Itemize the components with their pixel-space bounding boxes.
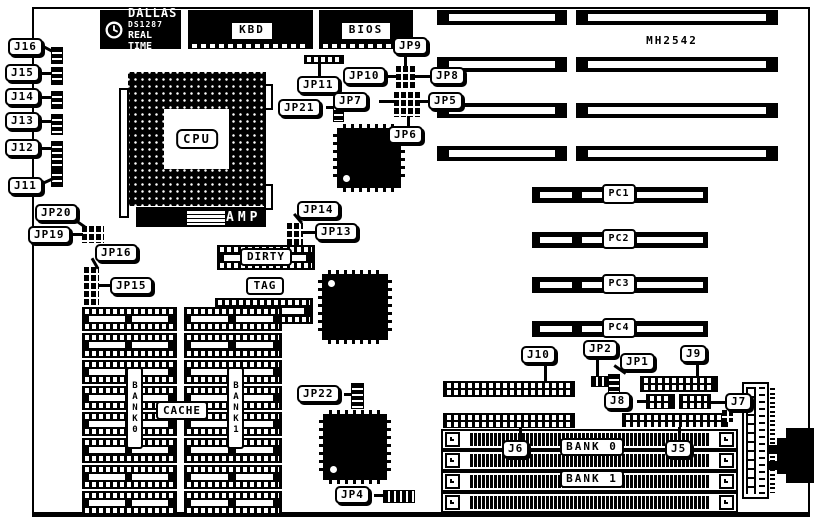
pin-row (187, 335, 279, 340)
callout-jp15: JP15 (110, 277, 153, 295)
cache-dip-socket (82, 307, 177, 331)
callout-jp7: JP7 (333, 92, 368, 110)
callout-j6: J6 (502, 440, 529, 458)
jumper-jp22 (351, 383, 364, 409)
pin-row (187, 309, 279, 314)
pc-slot-1: PC1 (532, 187, 708, 203)
callout-pointer (42, 147, 51, 150)
pin-header-j10 (443, 381, 575, 397)
socket-bar (191, 500, 228, 506)
socket-bar (89, 316, 125, 322)
power-connector-pins (770, 388, 775, 493)
callout-jp11: JP11 (297, 76, 340, 94)
socket-bar (89, 500, 125, 506)
pin-row (218, 300, 310, 305)
callout-j13: J13 (5, 112, 40, 130)
pin-row (85, 482, 174, 487)
jumper-jp4 (383, 490, 415, 503)
callout-jp6: JP6 (388, 126, 423, 144)
callout-j10: J10 (521, 346, 556, 364)
pin-row (187, 362, 279, 367)
jumper-j13 (51, 114, 63, 135)
socket-bar (132, 342, 168, 348)
pin-row (187, 324, 279, 329)
pin-row (85, 351, 174, 356)
isa-slot-1-long (576, 10, 778, 25)
cache-dip-socket (82, 333, 177, 357)
callout-j8: J8 (604, 392, 631, 410)
callout-pointer (696, 362, 699, 377)
socket-bar (89, 369, 125, 375)
cache-dip-socket (184, 465, 282, 489)
socket-bar (191, 447, 228, 453)
amp-connector (186, 210, 226, 226)
pc3-label: PC3 (602, 274, 636, 294)
callout-jp20: JP20 (35, 204, 78, 222)
callout-pointer (637, 400, 647, 403)
clock-icon (103, 19, 125, 41)
pin-row (85, 467, 174, 472)
cpu-side-connector-left (119, 88, 129, 218)
pin-row (187, 482, 279, 487)
pin-header-jp11 (304, 55, 344, 64)
callout-jp19: JP19 (28, 226, 71, 244)
kbd-chip: KBD (188, 10, 313, 49)
jumper-block-jp15-jp16 (84, 267, 99, 307)
socket-bar (191, 395, 228, 401)
socket-bar (191, 369, 228, 375)
callout-pointer (415, 75, 431, 78)
callout-jp21: JP21 (278, 99, 321, 117)
jumper-block-jp5-jp6-jp7 (394, 92, 420, 117)
callout-pointer (710, 401, 726, 404)
board-model: MH2542 (622, 34, 722, 47)
callout-pointer (42, 96, 51, 99)
amp-label: AMP (226, 210, 261, 225)
isa-slot-3-long (576, 103, 778, 118)
pin-row (187, 493, 279, 498)
bios-label: BIOS (341, 22, 391, 40)
callout-pointer (596, 357, 599, 377)
pc-slot-2: PC2 (532, 232, 708, 248)
jumper-j12 (51, 141, 63, 169)
callout-jp14: JP14 (297, 201, 340, 219)
callout-jp16: JP16 (95, 244, 138, 262)
qfp-chip-2 (322, 274, 388, 340)
callout-j9: J9 (680, 345, 707, 363)
keyboard-connector-tab (769, 445, 778, 454)
callout-jp13: JP13 (315, 223, 358, 241)
cpu-label: CPU (176, 129, 218, 149)
keyboard-connector-step (777, 438, 788, 474)
pc-slot-3: PC3 (532, 277, 708, 293)
cache-dip-socket (184, 307, 282, 331)
socket-bar (132, 316, 168, 322)
pin-row (85, 493, 174, 498)
motherboard-diagram: DALLAS DS1287 REAL TIME KBD BIOS MH2542 … (0, 0, 814, 520)
pin-header-j6 (443, 413, 575, 428)
pc-slot-4: PC4 (532, 321, 708, 337)
socket-bar (191, 316, 228, 322)
socket-bar (89, 395, 125, 401)
pin-header-j7 (679, 394, 711, 409)
socket-bar (236, 474, 273, 480)
dallas-rtc-chip: DALLAS DS1287 REAL TIME (100, 10, 181, 49)
pin-row (85, 362, 174, 367)
callout-jp5: JP5 (428, 92, 463, 110)
callout-pointer (519, 427, 522, 441)
callout-j7: J7 (725, 393, 752, 411)
jumper-block-jp8-jp9-jp10 (396, 66, 416, 90)
socket-bar (132, 474, 168, 480)
cache-dip-socket (184, 491, 282, 515)
pin-row (85, 324, 174, 329)
callout-pointer (42, 120, 51, 123)
simm-socket-4 (441, 492, 738, 513)
small-component (722, 410, 733, 422)
jumper-block-jp19-jp20 (82, 226, 104, 243)
callout-j12: J12 (5, 139, 40, 157)
callout-jp4: JP4 (335, 486, 370, 504)
isa-slot-2-long (576, 57, 778, 72)
callout-pointer (374, 494, 384, 497)
pin-row (85, 309, 174, 314)
logo-tagline: REAL TIME (128, 30, 178, 52)
pin-header-j8 (646, 394, 675, 409)
callout-pointer (404, 54, 407, 67)
callout-j11: J11 (8, 177, 43, 195)
isa-slot-1-short (437, 10, 567, 25)
socket-bar (191, 421, 228, 427)
isa-slot-4-long (576, 146, 778, 161)
socket-bar (132, 500, 168, 506)
cpu-socket: CPU (128, 72, 266, 206)
callout-pointer (71, 233, 83, 236)
callout-j14: J14 (5, 88, 40, 106)
pc1-label: PC1 (602, 184, 636, 204)
keyboard-connector-tab (769, 461, 778, 470)
callout-pointer (344, 393, 352, 396)
bank1-label: BANK 1 (560, 470, 624, 488)
cache-dip-socket (82, 491, 177, 515)
socket-bar (191, 474, 228, 480)
callout-pointer (678, 427, 681, 441)
pin-header-j5 (622, 413, 728, 427)
callout-jp8: JP8 (430, 67, 465, 85)
pin-row (85, 335, 174, 340)
pc4-label: PC4 (602, 318, 636, 338)
bank0-vertical-label: BANK0 (126, 367, 143, 449)
callout-pointer (388, 75, 397, 78)
socket-bar (89, 342, 125, 348)
callout-jp2: JP2 (583, 340, 618, 358)
jumper-j14 (51, 91, 63, 109)
dirty-label: DIRTY (240, 248, 292, 266)
pin-row (85, 508, 174, 513)
cache-dip-socket (82, 465, 177, 489)
callout-j5: J5 (665, 440, 692, 458)
callout-pointer (42, 72, 51, 75)
socket-bar (89, 447, 125, 453)
bank0-label: BANK 0 (560, 438, 624, 456)
cpu-side-connector-topright (264, 84, 273, 110)
isa-slot-4-short (437, 146, 567, 161)
amp-component: AMP (136, 207, 266, 227)
socket-bar (89, 474, 125, 480)
callout-pointer (379, 100, 395, 103)
callout-j16: J16 (8, 38, 43, 56)
socket-bar (236, 316, 273, 322)
pin-header-j9 (640, 376, 718, 392)
pin-row (85, 456, 174, 461)
keyboard-connector (786, 428, 814, 483)
jumper-block-jp13-jp14 (287, 223, 303, 246)
cache-label: CACHE (156, 401, 208, 420)
pin-row (187, 351, 279, 356)
kbd-label: KBD (231, 22, 273, 40)
logo-part: DS1287 (128, 19, 178, 30)
cache-dip-socket (184, 333, 282, 357)
callout-jp10: JP10 (343, 67, 386, 85)
pin-row (187, 508, 279, 513)
chip-pins (192, 44, 309, 48)
socket-bar (236, 342, 273, 348)
callout-jp1: JP1 (620, 353, 655, 371)
callout-pointer (544, 363, 547, 382)
bank1-vertical-label: BANK1 (227, 367, 244, 449)
socket-bar (89, 421, 125, 427)
callout-j15: J15 (5, 64, 40, 82)
socket-bar (191, 342, 228, 348)
logo-brand: DALLAS (128, 8, 178, 19)
tag-label: TAG (246, 277, 284, 295)
socket-bar (236, 500, 273, 506)
jumper-j15 (51, 67, 63, 85)
callout-jp9: JP9 (393, 37, 428, 55)
pin-row (187, 467, 279, 472)
pin-row (187, 456, 279, 461)
callout-jp22: JP22 (297, 385, 340, 403)
qfp-chip-3 (323, 414, 387, 480)
pc2-label: PC2 (602, 229, 636, 249)
